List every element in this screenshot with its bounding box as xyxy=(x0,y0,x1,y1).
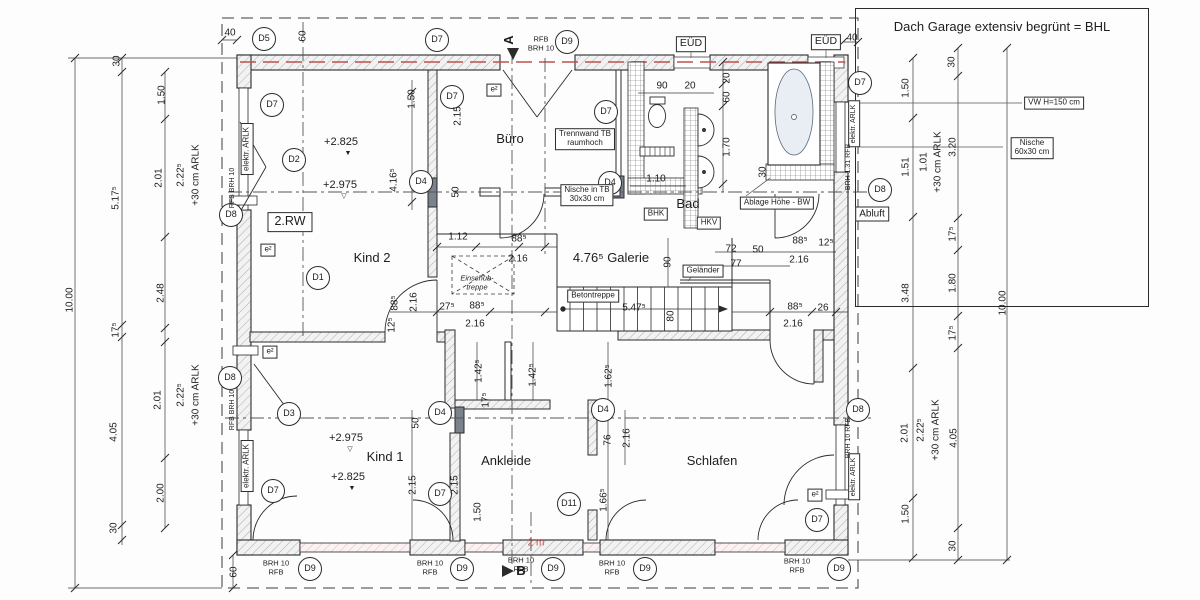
marker-d7: D7 xyxy=(428,482,452,506)
dim: 72 xyxy=(725,244,736,255)
dim: 2.16 xyxy=(789,255,808,266)
dim: 2.16 xyxy=(465,319,484,330)
dim: 1.70 xyxy=(722,137,733,156)
marker-d9: D9 xyxy=(827,557,851,581)
label-brh-rfb: BRH 10 RFB xyxy=(508,556,534,573)
label-elektr-arlk: elektr. ARLK xyxy=(848,454,860,501)
dim: 2.15 xyxy=(450,475,461,494)
dim: 60 xyxy=(298,30,309,41)
level-mark: +2.825 xyxy=(331,471,365,483)
marker-d7: D7 xyxy=(425,28,449,52)
dim: 2.48 xyxy=(156,283,167,302)
label-brh-rfb: BRH 10 RFB xyxy=(784,557,810,574)
dim: 27⁵ xyxy=(439,302,454,313)
marker-d11: D11 xyxy=(557,492,581,516)
dim: 40 xyxy=(846,33,857,44)
dim: 30 xyxy=(947,56,958,67)
marker-d4: D4 xyxy=(409,170,433,194)
dim: 17⁵ xyxy=(111,322,122,337)
level-triangle-filled: ▼ xyxy=(345,150,352,158)
marker-d8: D8 xyxy=(868,178,892,202)
level-mark: +2.975 xyxy=(323,179,357,191)
label-eud: EÜD xyxy=(676,36,706,52)
marker-d7: D7 xyxy=(848,71,872,95)
note-2m: 2 m xyxy=(528,538,545,549)
label-elektr-arlk: elektr. ARLK xyxy=(848,101,860,148)
room-ankleide: Ankleide xyxy=(481,454,531,468)
dim: 1.51 xyxy=(901,157,912,176)
dim: 30 xyxy=(758,166,769,177)
marker-d7: D7 xyxy=(805,508,829,532)
dim: 5.47⁵ xyxy=(622,303,646,314)
dim: 50 xyxy=(411,417,422,428)
room-bad: Bad xyxy=(676,197,699,211)
dim: +30 cm ARLK xyxy=(191,364,202,425)
dim: 88⁵ xyxy=(469,301,484,312)
dim: 3.20 xyxy=(948,137,959,156)
dim: 20 xyxy=(684,81,695,92)
dim: 1.12 xyxy=(448,232,467,243)
marker-d9: D9 xyxy=(541,557,565,581)
dim: 12⁵ xyxy=(387,317,398,332)
label-brh-rfb: BRH 10 RFB xyxy=(599,559,625,576)
dim: 12⁵ xyxy=(818,238,833,249)
dim: 1.10 xyxy=(646,174,665,185)
dim: 17⁵ xyxy=(481,392,492,407)
dim: 50 xyxy=(451,186,462,197)
label-rfb-brh: RFB BRH 10 xyxy=(229,168,237,208)
dim: 1.50 xyxy=(157,85,168,104)
dim: 2.15 xyxy=(408,475,419,494)
dim: 2.15 xyxy=(453,106,464,125)
dim: 17⁵ xyxy=(948,226,959,241)
label-einschubtreppe: Einschub- treppe xyxy=(460,274,493,291)
dim: 26 xyxy=(817,303,828,314)
marker-d7: D7 xyxy=(260,93,284,117)
label-betontreppe: Betontreppe xyxy=(567,290,619,303)
room-kind1: Kind 1 xyxy=(367,450,404,464)
room-kind2: Kind 2 xyxy=(354,251,391,265)
dim: 1.42⁵ xyxy=(474,359,485,383)
dim: 2.01 xyxy=(153,390,164,409)
marker-d9: D9 xyxy=(633,557,657,581)
label-e2: e² xyxy=(262,346,277,359)
dim: 2.16 xyxy=(622,428,633,447)
marker-d1: D1 xyxy=(306,266,330,290)
dim: 2.01 xyxy=(900,423,911,442)
plan-annotations: Kind 2BüroBad4.76⁵ GalerieKind 1Ankleide… xyxy=(0,0,1200,600)
dim: 1.01 xyxy=(919,152,930,171)
marker-d5: D5 xyxy=(252,27,276,51)
dim: 60 xyxy=(229,566,240,577)
room-buero: Büro xyxy=(496,132,523,146)
dim: 4.05 xyxy=(949,428,960,447)
marker-d9: D9 xyxy=(555,30,579,54)
dim: 90 xyxy=(663,256,674,267)
label-gelaender: Geländer xyxy=(683,265,724,278)
label-hkv: HKV xyxy=(697,217,721,230)
level-triangle-hollow: ▽ xyxy=(347,446,352,454)
label-vw: VW H=150 cm xyxy=(1024,97,1084,110)
marker-d7: D7 xyxy=(261,479,285,503)
label-brh-10: BRH 10 RFB xyxy=(845,418,853,458)
dim: 3.48 xyxy=(901,283,912,302)
dim: 10.00 xyxy=(65,287,76,312)
marker-d3: D3 xyxy=(277,402,301,426)
dim: 10.00 xyxy=(998,290,1009,315)
dim: 17⁵ xyxy=(948,325,959,340)
section-marker-a: A xyxy=(502,35,516,44)
dim: 77 xyxy=(730,259,741,270)
dim: 88⁵ xyxy=(511,234,526,245)
dim: 1.50 xyxy=(473,502,484,521)
dim: 2.22⁵ xyxy=(916,418,927,442)
floor-plan-page: Dach Garage extensiv begrünt = BHL Kind … xyxy=(0,0,1200,600)
dim: 20 xyxy=(722,72,733,83)
marker-d9: D9 xyxy=(298,557,322,581)
label-bhk: BHK xyxy=(644,208,668,221)
label-rfb-brh: RFB BRH 10 xyxy=(528,35,554,52)
dim: 1.50 xyxy=(407,89,418,108)
label-e2: e² xyxy=(260,244,275,257)
dim: 88⁵ xyxy=(792,236,807,247)
level-triangle-filled: ▼ xyxy=(349,485,356,493)
dim: 30 xyxy=(109,522,120,533)
dim: 1.80 xyxy=(948,273,959,292)
dim: 40 xyxy=(224,28,235,39)
label-2rw: 2.RW xyxy=(267,212,312,232)
label-eud: EÜD xyxy=(811,34,841,50)
level-mark: +2.825 xyxy=(324,136,358,148)
room-galerie: 4.76⁵ Galerie xyxy=(573,251,649,265)
label-trennwand: Trennwand TB raumhoch xyxy=(555,128,615,150)
label-brh-131: BRH 1.31 RFB xyxy=(845,144,853,190)
dim: 1.62⁵ xyxy=(604,364,615,388)
dim: 1.66⁵ xyxy=(599,488,610,512)
marker-d8: D8 xyxy=(218,366,242,390)
dim: 1.50 xyxy=(901,78,912,97)
dim: 76 xyxy=(603,434,614,445)
label-brh-rfb: BRH 10 RFB xyxy=(263,559,289,576)
label-abluft: Abluft xyxy=(855,207,889,222)
label-nische-tb: Nische in TB 30x30 cm xyxy=(560,184,613,206)
dim: 2.22⁵ xyxy=(176,383,187,407)
dim: 4.16⁵ xyxy=(389,168,400,192)
marker-d9: D9 xyxy=(450,557,474,581)
room-schlafen: Schlafen xyxy=(687,454,738,468)
marker-d4: D4 xyxy=(591,398,615,422)
dim: +30 cm ARLK xyxy=(933,131,944,192)
dim: 2.16 xyxy=(508,254,527,265)
dim: 2.22⁵ xyxy=(176,163,187,187)
dim: 80 xyxy=(666,310,677,321)
label-brh-rfb: BRH 10 RFB xyxy=(417,559,443,576)
dim: 1.50 xyxy=(901,504,912,523)
dim: 5.17⁵ xyxy=(111,186,122,210)
label-ablage: Ablage Höhe - BW xyxy=(740,197,814,210)
dim: +30 cm ARLK xyxy=(931,399,942,460)
label-elektr-arlk: elektr. ARLK xyxy=(241,123,254,175)
dim: 2.16 xyxy=(783,319,802,330)
marker-d4: D4 xyxy=(428,401,452,425)
dim: 4.05 xyxy=(109,422,120,441)
dim: 1.42⁵ xyxy=(528,363,539,387)
marker-d7: D7 xyxy=(594,100,618,124)
dim: 2.01 xyxy=(154,168,165,187)
label-elektr-arlk: elektr. ARLK xyxy=(241,440,254,492)
dim: 88⁵ xyxy=(390,295,401,310)
label-e2: e² xyxy=(807,489,822,502)
dim: +30 cm ARLK xyxy=(191,144,202,205)
dim: 90 xyxy=(656,81,667,92)
dim: 2.00 xyxy=(156,483,167,502)
dim: 30 xyxy=(112,55,123,66)
label-rfb-brh: RFB BRH 10 xyxy=(229,390,237,430)
label-e2: e² xyxy=(486,84,501,97)
label-nische-60: Nische 60x30 cm xyxy=(1011,137,1054,159)
dim: 30 xyxy=(948,540,959,551)
marker-d2: D2 xyxy=(282,148,306,172)
dim: 60 xyxy=(722,91,733,102)
level-mark: +2.975 xyxy=(329,432,363,444)
level-triangle-hollow: ▽ xyxy=(341,193,346,201)
dim: 88⁵ xyxy=(787,302,802,313)
dim: 50 xyxy=(752,245,763,256)
dim: 2.16 xyxy=(409,292,420,311)
